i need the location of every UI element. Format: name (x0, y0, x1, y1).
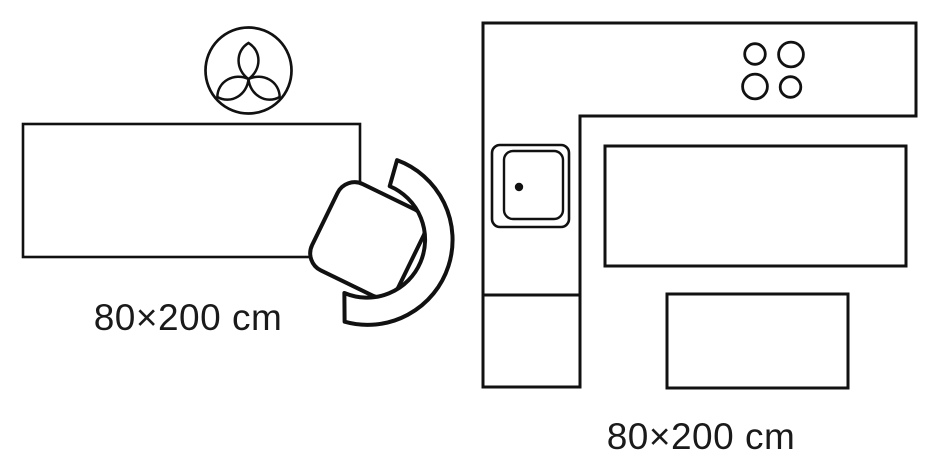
rug-kitchen (605, 146, 906, 266)
rug-living-room (23, 124, 360, 257)
size-label-living-room: 80×200 cm (94, 297, 283, 338)
plant-icon (206, 28, 292, 114)
sink-icon (492, 145, 569, 227)
sink-drain-dot (515, 183, 523, 191)
kitchen-table (667, 294, 848, 388)
kitchen-scene: 80×200 cm (483, 23, 916, 457)
burner-bottom-left (743, 74, 768, 99)
burner-top-right (779, 42, 804, 67)
living-room-scene: 80×200 cm (23, 28, 481, 353)
size-label-kitchen: 80×200 cm (607, 416, 796, 457)
burner-top-left (745, 44, 766, 65)
rug-placement-diagram: 80×200 cm 8 (0, 0, 940, 460)
sink-basin (504, 151, 563, 219)
chair-top-view (288, 143, 481, 353)
burner-bottom-right (780, 77, 801, 98)
plant-leaf-top (239, 43, 259, 79)
diagram-canvas: 80×200 cm 8 (0, 0, 940, 460)
